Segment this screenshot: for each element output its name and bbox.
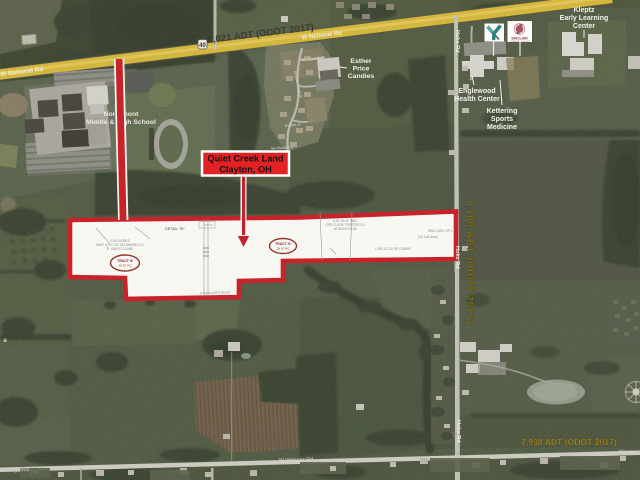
svg-text:7,938 ADT (ODOT 2017): 7,938 ADT (ODOT 2017) <box>521 437 617 447</box>
svg-text:Esther: Esther <box>350 58 372 65</box>
svg-text:SING GIRC OP L: SING GIRC OP L <box>428 229 453 233</box>
svg-text:Kleptz: Kleptz <box>574 7 596 14</box>
svg-text:Hoke Rd: Hoke Rd <box>454 30 460 53</box>
svg-text:TRACT III: TRACT III <box>117 259 132 263</box>
svg-text:Clayton, OH: Clayton, OH <box>219 165 272 175</box>
svg-text:(20.118 acre): (20.118 acre) <box>418 235 438 239</box>
svg-text:Medicine: Medicine <box>487 124 517 131</box>
svg-text:DETAIL "B": DETAIL "B" <box>165 227 185 231</box>
svg-text:Kettering: Kettering <box>487 108 518 115</box>
svg-text:R. SANTO CLARK: R. SANTO CLARK <box>107 247 134 251</box>
svg-text:Sports: Sports <box>491 116 513 123</box>
svg-text:Center: Center <box>573 23 595 30</box>
svg-text:I 090 12 130 OF CONNS: I 090 12 130 OF CONNS <box>375 247 410 251</box>
svg-text:Wenger: Wenger <box>618 450 637 456</box>
svg-text:2717.6: 2717.6 <box>203 223 213 227</box>
svg-text:Health Center: Health Center <box>454 96 500 103</box>
svg-text:Price: Price <box>353 66 370 73</box>
svg-text:Candies: Candies <box>348 73 375 80</box>
svg-text:Hoke Rd: Hoke Rd <box>454 246 460 269</box>
svg-text:Englewood: Englewood <box>458 88 495 95</box>
svg-text:40: 40 <box>199 43 206 49</box>
svg-text:28.07 AC: 28.07 AC <box>277 247 290 251</box>
svg-text:WengerRd: WengerRd <box>3 467 29 474</box>
svg-text:TRACT IV: TRACT IV <box>275 242 291 246</box>
svg-text:16.97 AC: 16.97 AC <box>119 264 132 268</box>
svg-text:Early Learning: Early Learning <box>560 15 609 22</box>
svg-text:Hoke Rd: Hoke Rd <box>455 420 461 443</box>
svg-text:7,189 ADT (ODOT 2017): 7,189 ADT (ODOT 2017) <box>465 199 475 324</box>
svg-text:AT 800 W 29.06: AT 800 W 29.06 <box>334 227 357 231</box>
svg-text:W Wenger Rd: W Wenger Rd <box>279 457 314 464</box>
svg-text:Quiet Creek Land: Quiet Creek Land <box>207 154 283 164</box>
